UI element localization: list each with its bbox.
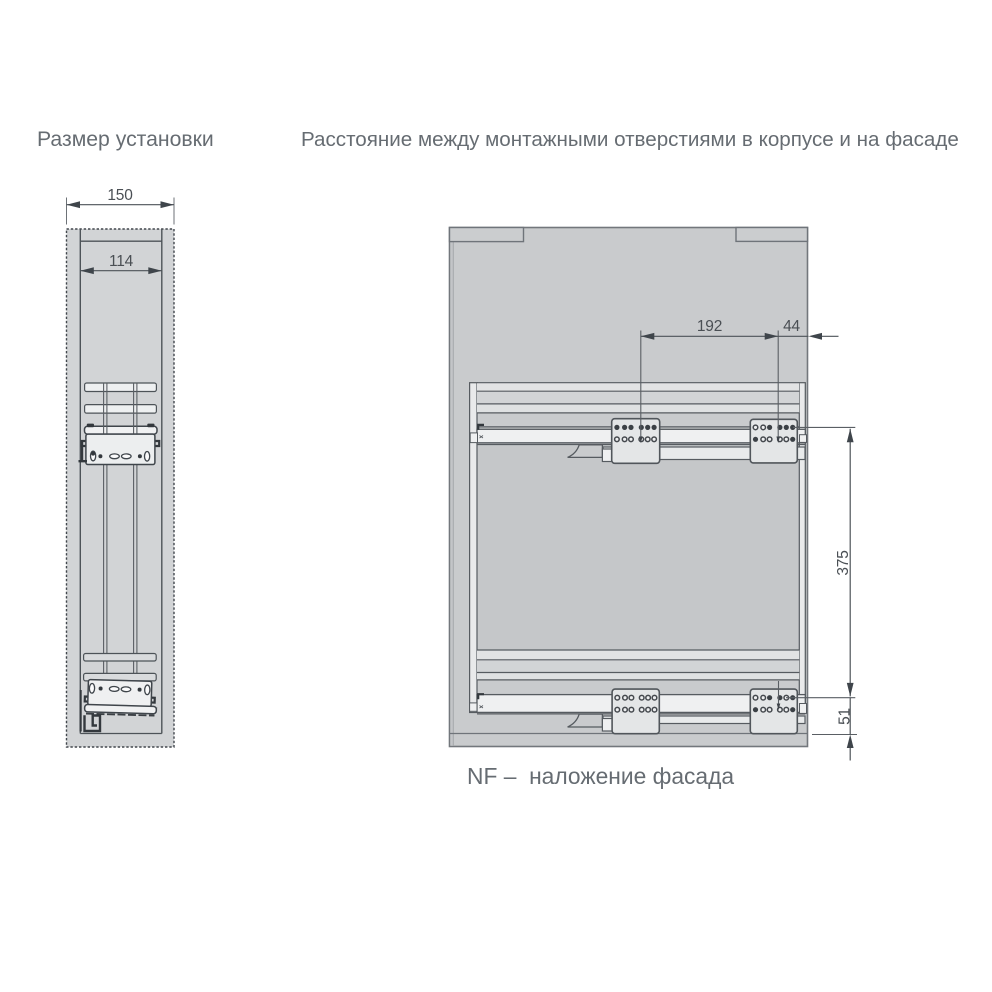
svg-text:NF – наложение фасада: NF – наложение фасада (467, 763, 734, 789)
svg-text:192: 192 (697, 318, 722, 335)
svg-text:114: 114 (109, 253, 134, 270)
svg-text:44: 44 (783, 318, 800, 335)
svg-text:150: 150 (107, 187, 133, 204)
svg-text:Расстояние между монтажными от: Расстояние между монтажными отверстиями … (301, 128, 959, 151)
svg-text:Размер установки: Размер установки (37, 128, 214, 151)
svg-text:51: 51 (836, 708, 853, 725)
svg-text:375: 375 (835, 550, 852, 575)
